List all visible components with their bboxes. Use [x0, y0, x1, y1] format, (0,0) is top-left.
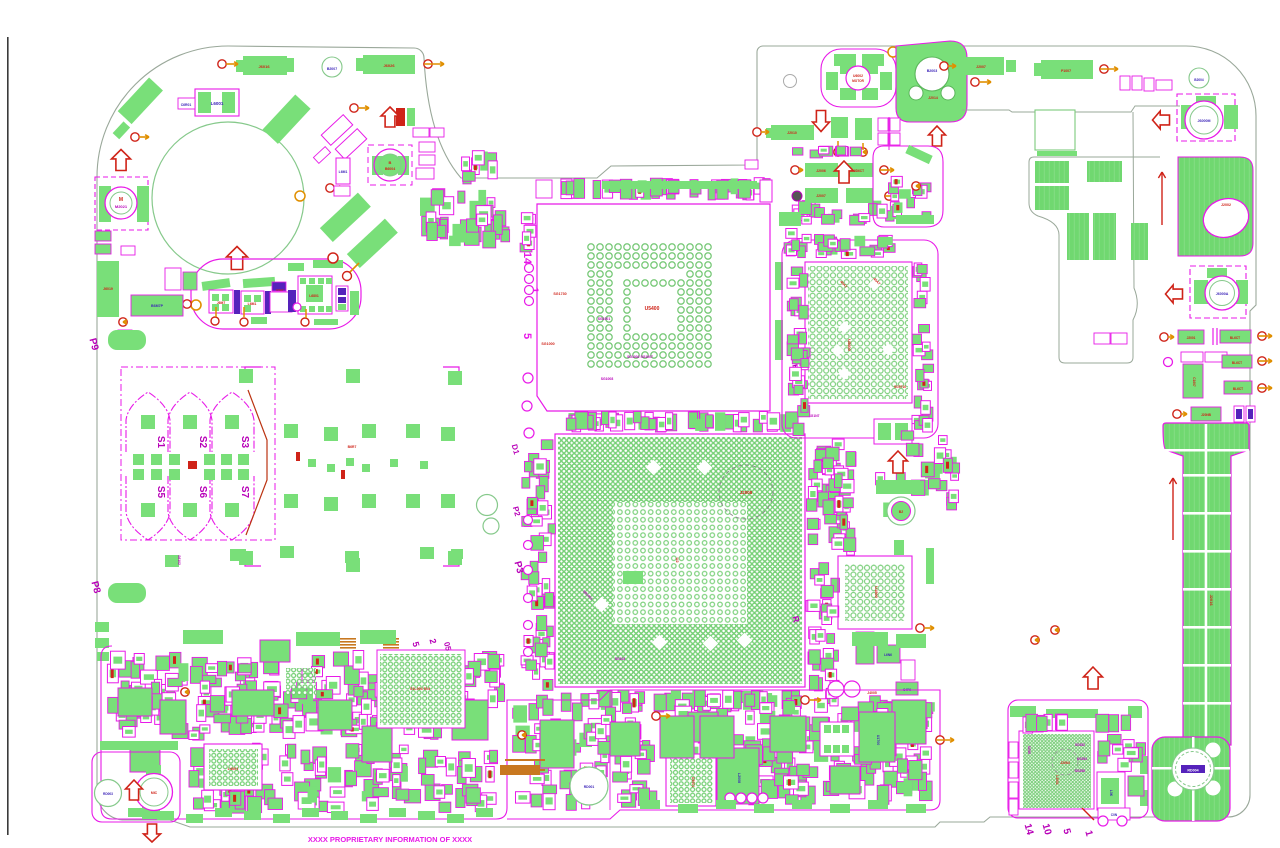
svg-text:M: M: [119, 197, 123, 203]
svg-text:SG258: SG258: [1075, 769, 1085, 773]
svg-text:J2007: J2007: [976, 65, 986, 69]
svg-text:B2003: B2003: [927, 69, 938, 73]
svg-text:S1: S1: [155, 436, 166, 449]
svg-text:B2: B2: [899, 510, 904, 514]
svg-text:5: 5: [521, 333, 533, 339]
svg-text:J2001: J2001: [1187, 336, 1196, 340]
svg-text:J2002: J2002: [1221, 203, 1231, 207]
svg-text:SG1730: SG1730: [553, 292, 566, 296]
svg-text:BL6CT: BL6CT: [1230, 336, 1240, 340]
svg-text:J2006: J2006: [816, 169, 826, 173]
svg-text:L6M1: L6M1: [248, 302, 257, 306]
svg-text:S1L004 S04: S1L004 S04: [410, 687, 430, 691]
svg-text:L3K: L3K: [1109, 790, 1113, 797]
svg-text:SG1N7: SG1N7: [809, 414, 820, 418]
svg-text:U2: U2: [675, 557, 680, 563]
svg-text:BL6CT: BL6CT: [1233, 387, 1243, 391]
svg-text:SG252: SG252: [1075, 743, 1085, 747]
svg-text:S7: S7: [239, 486, 250, 499]
svg-text:J2016: J2016: [1209, 594, 1214, 606]
svg-text:L4001: L4001: [228, 767, 239, 771]
svg-text:MOTOR: MOTOR: [852, 79, 865, 83]
svg-text:SG1002 SG1007: SG1002 SG1007: [627, 355, 653, 359]
svg-text:J2014: J2014: [928, 96, 938, 100]
svg-text:J6026: J6026: [383, 63, 395, 68]
svg-text:U1800: U1800: [874, 586, 879, 599]
svg-text:C1607: C1607: [1192, 377, 1196, 387]
svg-text:L6M1: L6M1: [339, 170, 348, 174]
svg-text:J2064: J2064: [1060, 761, 1070, 765]
svg-text:C6A7: C6A7: [276, 288, 284, 292]
svg-text:C6R01: C6R01: [181, 103, 192, 107]
svg-text:J2010: J2010: [787, 131, 797, 135]
svg-text:SG1000: SG1000: [541, 342, 554, 346]
svg-text:L3001: L3001: [1055, 775, 1059, 785]
svg-text:S6: S6: [197, 486, 208, 499]
svg-text:S5: S5: [155, 486, 166, 499]
svg-text:J6019: J6019: [103, 287, 113, 291]
svg-text:L2008: L2008: [737, 773, 741, 783]
svg-text:U3001: U3001: [691, 777, 695, 788]
svg-text:B6004: B6004: [385, 167, 395, 171]
svg-text:RD004: RD004: [1187, 769, 1198, 773]
svg-text:J4005: J4005: [867, 691, 877, 695]
svg-text:U1700: U1700: [876, 735, 880, 746]
svg-text:L6N6: L6N6: [884, 653, 892, 657]
svg-text:U5400: U5400: [645, 306, 660, 312]
svg-text:J6M7: J6M7: [217, 301, 226, 305]
svg-text:B6M7P: B6M7P: [151, 304, 164, 308]
svg-text:SG5710: SG5710: [894, 385, 906, 389]
svg-text:M2021: M2021: [115, 204, 128, 209]
svg-text:U5600: U5600: [847, 339, 852, 352]
svg-text:SG102: SG102: [615, 657, 626, 661]
svg-text:SG1001: SG1001: [598, 317, 611, 321]
svg-text:L6001: L6001: [211, 101, 224, 106]
svg-text:B2004: B2004: [1194, 78, 1204, 82]
svg-text:14: 14: [521, 252, 533, 265]
svg-text:J6016: J6016: [258, 64, 270, 69]
svg-text:SG254: SG254: [1077, 757, 1087, 761]
svg-text:J20NB: J20NB: [1201, 413, 1212, 417]
svg-text:BL6CT: BL6CT: [1232, 361, 1242, 365]
svg-text:SG1008: SG1008: [601, 377, 614, 381]
svg-text:L6801: L6801: [309, 294, 319, 298]
svg-text:RD003: RD003: [103, 792, 113, 796]
svg-text:J6000M: J6000M: [1198, 119, 1211, 123]
svg-text:B6R7: B6R7: [348, 445, 357, 449]
svg-text:S2: S2: [197, 436, 208, 449]
svg-text:B2007: B2007: [327, 67, 337, 71]
svg-text:MIC: MIC: [151, 791, 158, 795]
svg-text:XXXX PROPRIETARY INFORMATION O: XXXX PROPRIETARY INFORMATION OF XXXX: [308, 835, 472, 843]
svg-text:B: B: [389, 160, 392, 165]
svg-text:SG50: SG50: [1027, 746, 1031, 754]
svg-text:9D6CT: 9D6CT: [854, 169, 864, 173]
svg-text:J2008: J2008: [740, 490, 753, 495]
svg-text:P1007: P1007: [1061, 69, 1071, 73]
svg-text:RD001: RD001: [584, 785, 595, 789]
svg-text:C0N: C0N: [1111, 813, 1118, 817]
svg-text:J2007: J2007: [816, 194, 826, 198]
svg-text:S6102: S6102: [177, 555, 181, 565]
svg-text:J6000A: J6000A: [1216, 292, 1229, 296]
svg-text:U6002: U6002: [853, 74, 863, 78]
svg-text:S3: S3: [239, 436, 250, 449]
